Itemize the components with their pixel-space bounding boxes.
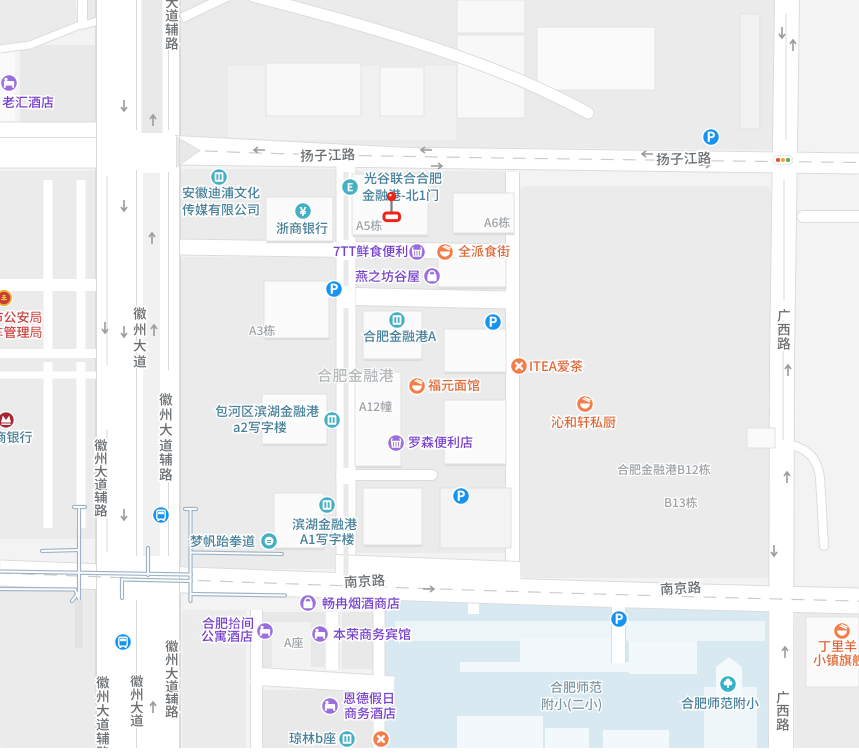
svg-text:P: P (457, 486, 466, 505)
svg-text:P: P (707, 127, 716, 146)
svg-text:7TT鲜食便利: 7TT鲜食便利 (333, 241, 408, 260)
svg-text:扬子江路: 扬子江路 (300, 143, 356, 165)
svg-text:a2写字楼: a2写字楼 (233, 417, 287, 436)
svg-text:B13栋: B13栋 (664, 494, 698, 511)
svg-text:¥: ¥ (299, 203, 307, 219)
svg-text:沁和轩私厨: 沁和轩私厨 (551, 412, 616, 431)
svg-text:徽州大道辅路: 徽州大道辅路 (96, 672, 110, 749)
svg-text:合肥金融港A: 合肥金融港A (363, 326, 437, 345)
svg-text:商务酒店: 商务酒店 (344, 703, 396, 722)
svg-text:P: P (489, 312, 498, 331)
svg-text:合肥金融港: 合肥金融港 (317, 365, 394, 386)
svg-text:本荣商务宾馆: 本荣商务宾馆 (333, 624, 411, 643)
svg-text:公寓酒店: 公寓酒店 (201, 626, 253, 645)
svg-text:徽州大道辅路: 徽州大道辅路 (165, 636, 179, 721)
svg-text:老汇酒店: 老汇酒店 (2, 92, 54, 111)
svg-text:全派食街: 全派食街 (458, 241, 510, 260)
svg-text:A6栋: A6栋 (484, 214, 510, 231)
svg-text:E: E (347, 180, 353, 195)
svg-text:畅冉烟酒商店: 畅冉烟酒商店 (322, 593, 400, 612)
svg-text:ITEA爱茶: ITEA爱茶 (529, 356, 583, 375)
svg-text:金融港-北1门: 金融港-北1门 (362, 185, 439, 204)
svg-text:A12幢: A12幢 (359, 398, 392, 415)
svg-text:P: P (615, 609, 624, 628)
svg-text:徽州大道: 徽州大道 (130, 671, 144, 730)
svg-text:南京路: 南京路 (343, 569, 386, 592)
svg-text:A5栋: A5栋 (356, 217, 382, 234)
svg-text:燕之坊谷屋: 燕之坊谷屋 (355, 266, 420, 285)
svg-text:浙商银行: 浙商银行 (276, 218, 328, 237)
svg-text:车管理局: 车管理局 (0, 322, 43, 341)
svg-text:梦帆跆拳道: 梦帆跆拳道 (190, 531, 255, 550)
svg-text:徽州大道辅路: 徽州大道辅路 (159, 389, 173, 484)
svg-text:大道辅路: 大道辅路 (165, 0, 179, 53)
svg-text:南京路: 南京路 (659, 576, 702, 599)
svg-text:A3栋: A3栋 (249, 322, 275, 339)
svg-text:附小(二小): 附小(二小) (541, 694, 602, 713)
svg-text:福元面馆: 福元面馆 (428, 375, 480, 394)
svg-text:P: P (330, 279, 339, 298)
svg-text:传媒有限公司: 传媒有限公司 (182, 200, 260, 219)
svg-text:A1写字楼: A1写字楼 (300, 529, 355, 548)
svg-text:小镇旗舰: 小镇旗舰 (813, 650, 859, 669)
svg-text:商银行: 商银行 (0, 427, 33, 446)
svg-text:徽州大道辅路: 徽州大道辅路 (94, 435, 108, 520)
svg-text:合肥师范附小: 合肥师范附小 (681, 693, 759, 712)
svg-text:徽州大道: 徽州大道 (133, 303, 147, 371)
svg-text:琼林b座: 琼林b座 (289, 728, 336, 747)
svg-text:广西路: 广西路 (777, 305, 791, 353)
svg-text:广西路: 广西路 (776, 687, 790, 734)
svg-text:A座: A座 (284, 634, 303, 651)
svg-text:合肥金融港B12栋: 合肥金融港B12栋 (617, 461, 711, 478)
svg-text:扬子江路: 扬子江路 (656, 147, 712, 169)
svg-text:罗森便利店: 罗森便利店 (408, 432, 473, 451)
